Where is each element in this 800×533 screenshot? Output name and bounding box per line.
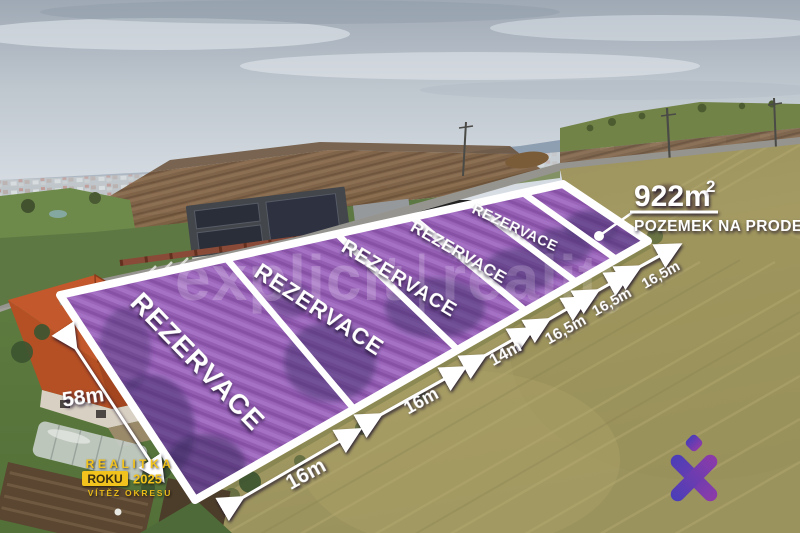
- badge-subtitle: VÍTĚZ OKRESU: [88, 487, 172, 498]
- garden-statue: [115, 509, 122, 516]
- bush: [89, 192, 101, 204]
- cloud: [240, 52, 700, 80]
- window: [96, 410, 106, 418]
- aerial-land-listing-photo: explicit|reality REZERVACE REZERVACE REZ…: [0, 0, 800, 533]
- badge-title: REALITKA: [86, 457, 175, 471]
- area-value: 922m: [634, 180, 711, 213]
- badge-box-word: ROKU: [87, 472, 122, 486]
- garden-pond: [49, 210, 67, 218]
- scene-canvas: explicit|reality REZERVACE REZERVACE REZ…: [0, 0, 800, 533]
- bush: [21, 199, 35, 213]
- leader-dot: [594, 231, 604, 241]
- area-subtitle: POZEMEK NA PRODEJ: [634, 218, 800, 235]
- area-superscript: 2: [706, 177, 715, 196]
- cloud-dark: [40, 0, 560, 24]
- badge-year: 2025: [133, 472, 162, 487]
